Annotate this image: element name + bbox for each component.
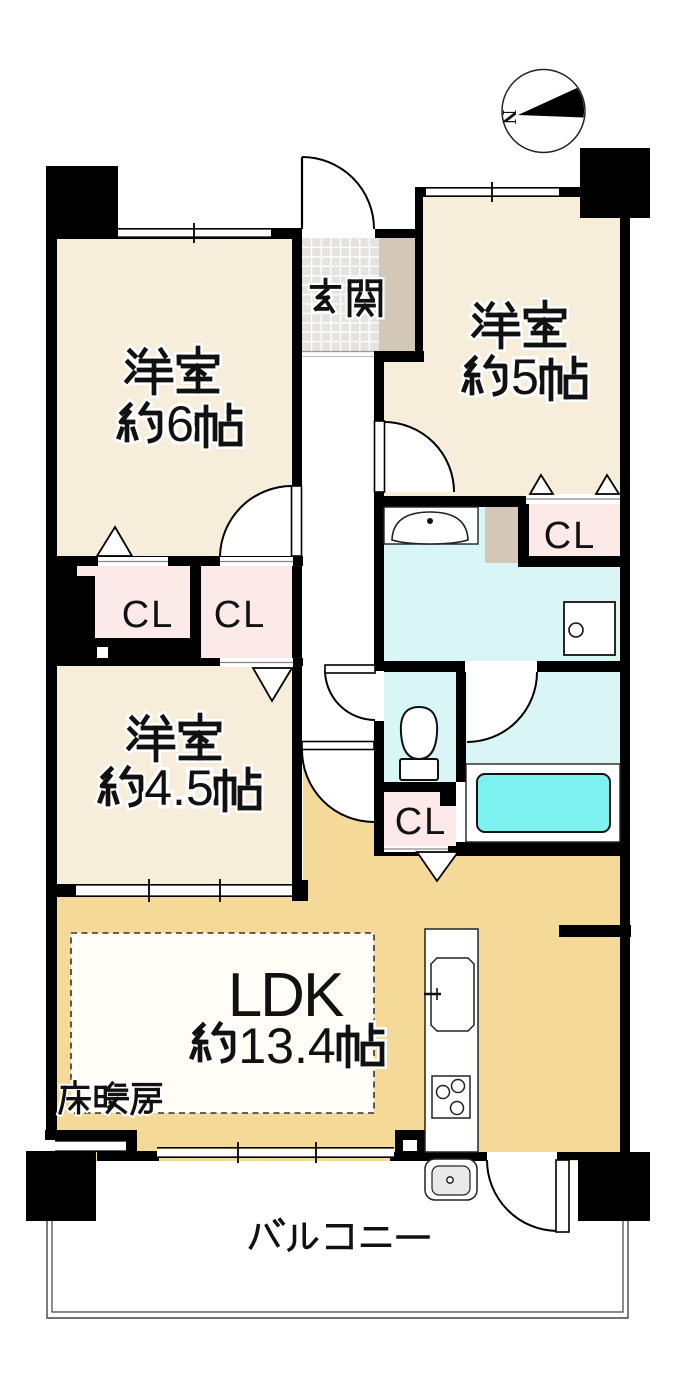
svg-text:6: 6 [166, 396, 194, 452]
svg-text:CL: CL [214, 594, 267, 636]
svg-text:CL: CL [122, 594, 175, 636]
svg-text:N: N [498, 110, 520, 125]
svg-text:4.5: 4.5 [144, 760, 214, 816]
svg-text:CL: CL [544, 515, 597, 557]
svg-text:5: 5 [511, 349, 539, 405]
svg-text:13.4: 13.4 [238, 1018, 335, 1074]
svg-text:CL: CL [395, 801, 448, 843]
